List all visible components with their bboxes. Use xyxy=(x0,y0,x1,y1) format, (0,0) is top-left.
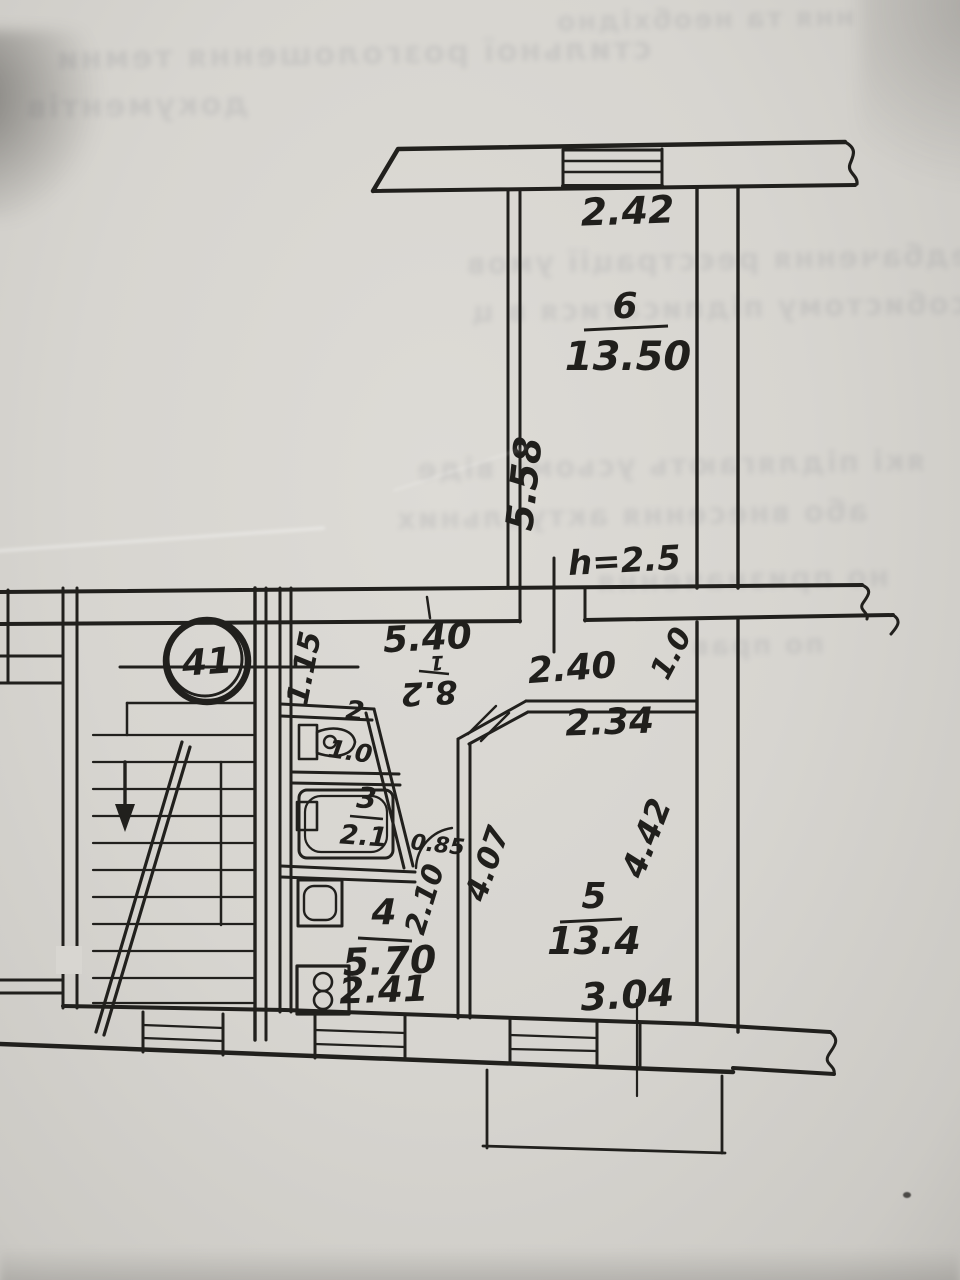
wc-number: 2 xyxy=(344,695,366,728)
left-neighbor-walls xyxy=(0,590,63,993)
scanned-floor-plan-page: ння та необхідно стильної розголошення т… xyxy=(0,0,960,1280)
kitchen-sink-icon xyxy=(298,880,342,926)
dim-room6-width: 2.42 xyxy=(580,187,675,234)
neighbor-apartment-wall xyxy=(697,620,836,1074)
dim-room5-door-width: 1.0 xyxy=(644,622,700,685)
wall-gap xyxy=(56,946,82,974)
balcony-outline xyxy=(483,1070,725,1153)
stairs-down-arrow xyxy=(115,762,135,832)
bottom-exterior-wall xyxy=(0,1044,733,1072)
bathroom-fraction-bar xyxy=(350,816,383,819)
dim-room5-depth-left: 4.07 xyxy=(458,821,517,906)
room6-window xyxy=(563,149,662,187)
ink-speck xyxy=(903,1192,911,1198)
ceiling-height-label: h=2.5 xyxy=(567,538,682,584)
dim-corridor-width: 1.15 xyxy=(280,629,328,708)
room5-area: 13.4 xyxy=(547,919,641,963)
wc-area: 1.0 xyxy=(326,734,374,769)
kitchen-number: 4 xyxy=(370,892,396,933)
room5-number: 5 xyxy=(581,876,606,917)
dim-room6-depth: 5.58 xyxy=(497,435,551,533)
bathroom-number: 3 xyxy=(355,780,378,815)
room6-area: 13.50 xyxy=(565,334,692,380)
corridor-area: 8.2 xyxy=(400,673,459,714)
kitchen-window xyxy=(315,1014,405,1060)
dim-corridor-length: 5.40 xyxy=(382,616,473,662)
dim-room5-width-upper: 2.34 xyxy=(564,700,654,744)
room5-bottom-wall xyxy=(457,1016,697,1024)
room6-fraction-bar xyxy=(584,326,668,330)
dim-kitchen-width: 2.41 xyxy=(338,968,428,1012)
room6-number: 6 xyxy=(612,286,637,327)
plan-labels: 41 2.42 6 13.50 5.58 h=2.5 5.40 1.15 1 8… xyxy=(180,187,700,1019)
staircase xyxy=(93,703,253,1035)
apartment-number-label: 41 xyxy=(180,640,234,684)
room6-walls xyxy=(508,187,738,588)
bathroom-area: 2.1 xyxy=(339,819,389,853)
dim-room5-depth-right: 4.42 xyxy=(613,793,679,884)
dim-room5-wall-top: 2.40 xyxy=(526,645,617,692)
dim-room5-width-bottom: 3.04 xyxy=(579,971,675,1020)
floor-plan-svg: 41 2.42 6 13.50 5.58 h=2.5 5.40 1.15 1 8… xyxy=(0,0,960,1280)
